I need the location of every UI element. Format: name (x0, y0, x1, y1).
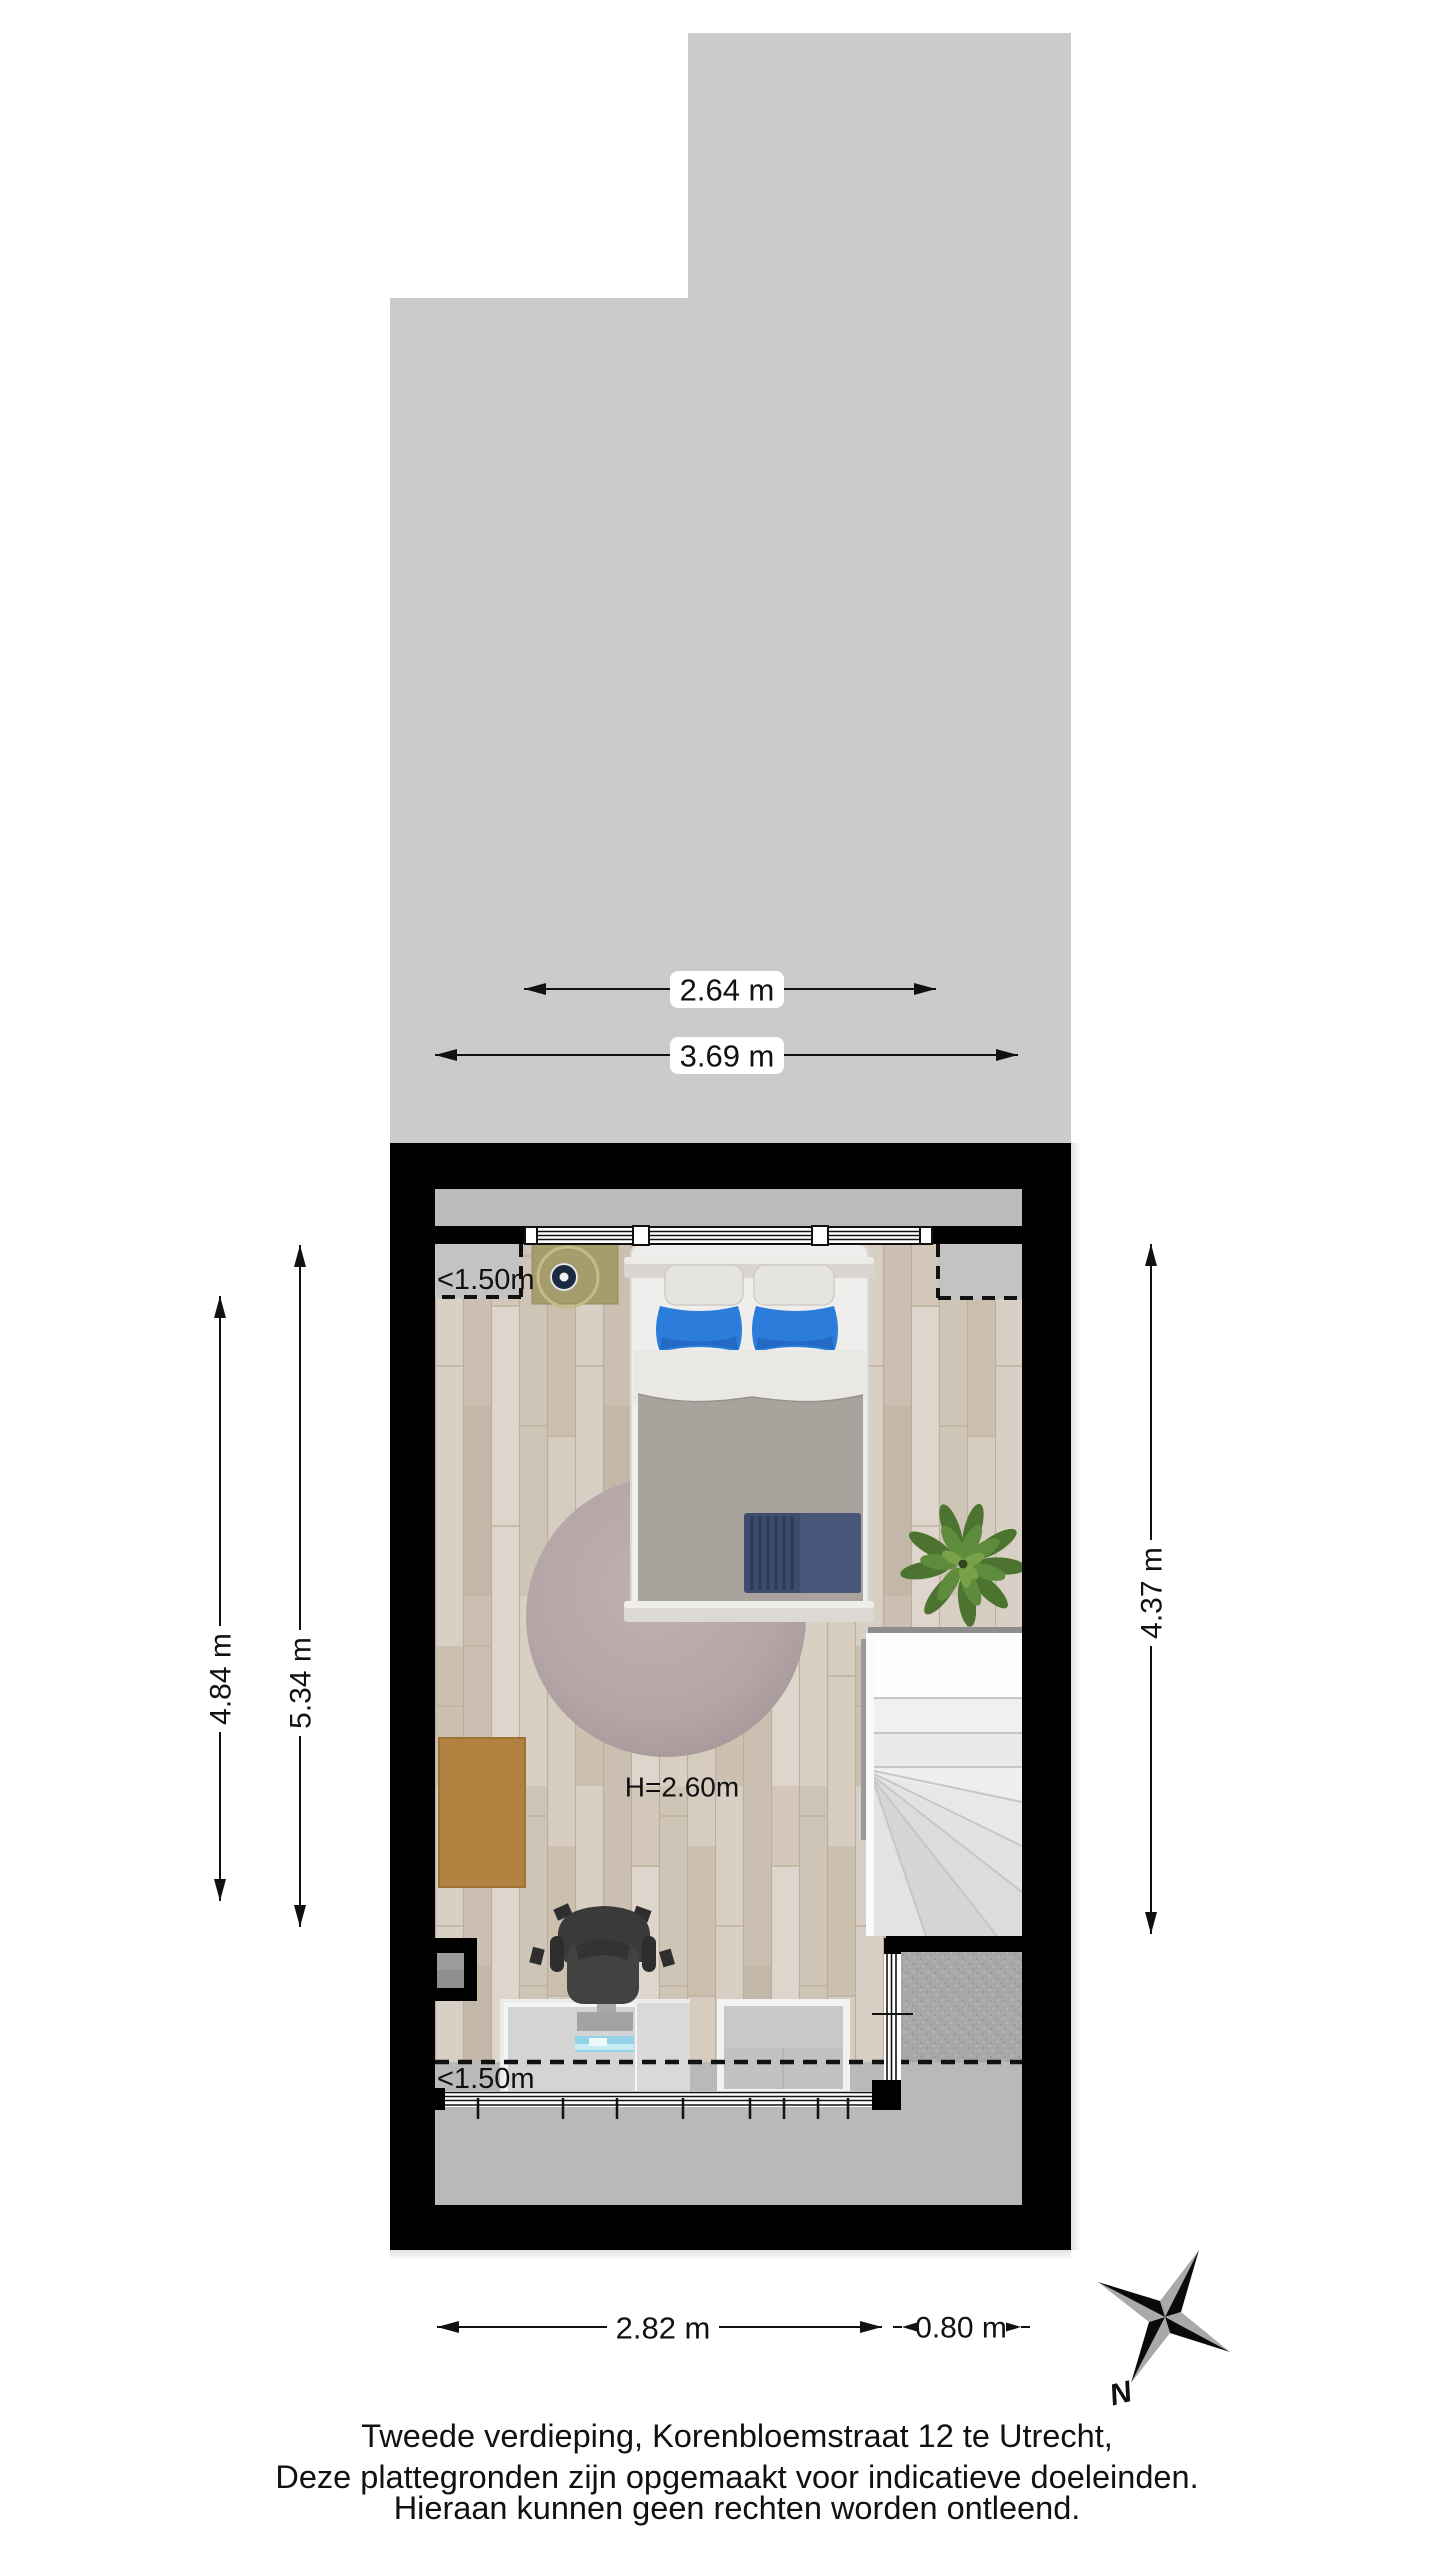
svg-text:Tweede verdieping, Korenbloems: Tweede verdieping, Korenbloemstraat 12 t… (361, 2418, 1113, 2454)
svg-text:<1.50m: <1.50m (437, 2063, 535, 2095)
svg-text:<1.50m: <1.50m (437, 1264, 535, 1296)
svg-text:2.82 m: 2.82 m (616, 2311, 711, 2346)
svg-text:H=2.60m: H=2.60m (625, 1772, 739, 1803)
svg-text:5.34 m: 5.34 m (285, 1637, 318, 1729)
svg-text:2.64 m: 2.64 m (680, 973, 775, 1008)
svg-text:4.84 m: 4.84 m (205, 1633, 238, 1725)
svg-text:Hieraan kunnen geen rechten wo: Hieraan kunnen geen rechten worden ontle… (394, 2490, 1081, 2526)
svg-text:4.37 m: 4.37 m (1136, 1547, 1169, 1639)
svg-text:3.69 m: 3.69 m (680, 1039, 775, 1074)
svg-text:0.80 m: 0.80 m (915, 2312, 1007, 2345)
